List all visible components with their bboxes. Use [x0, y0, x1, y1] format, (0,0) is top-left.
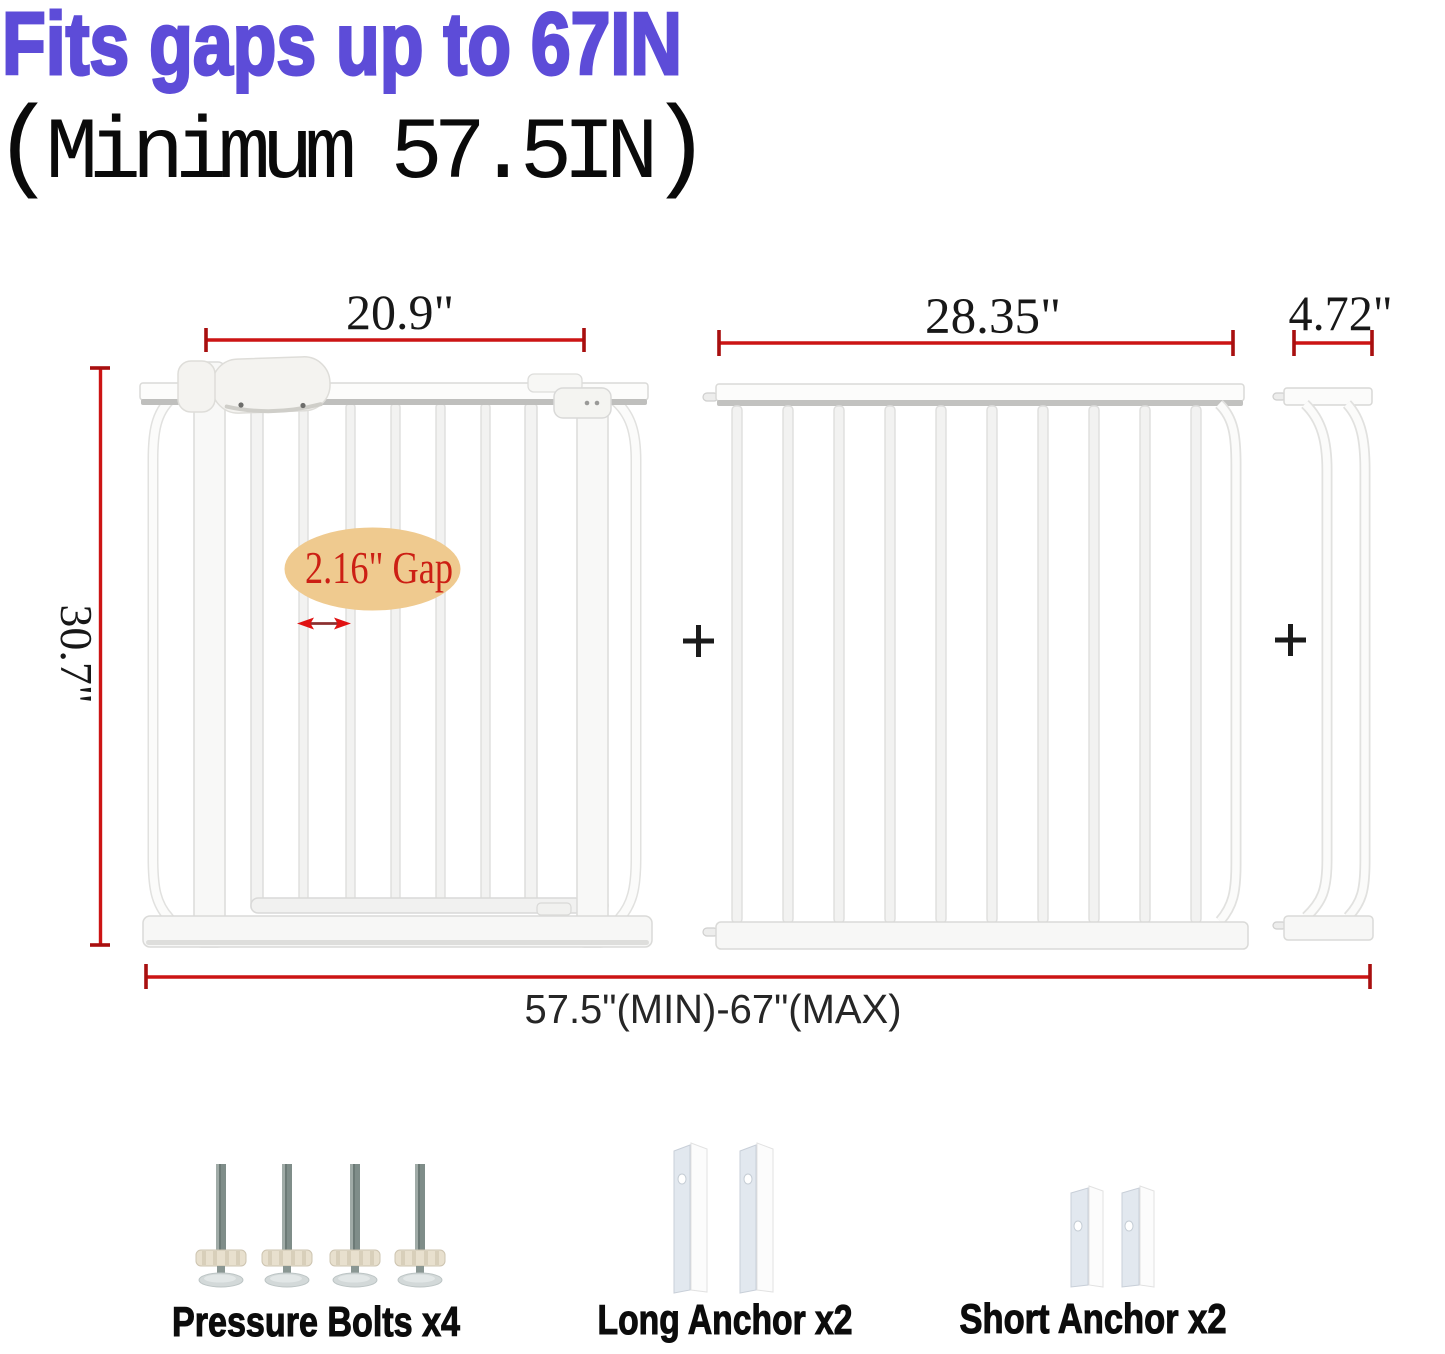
svg-text:2.16" Gap: 2.16" Gap [305, 542, 453, 593]
svg-text:30.7": 30.7" [51, 604, 102, 703]
svg-text:4.72": 4.72" [1289, 285, 1393, 341]
svg-text:57.5"(MIN)-67"(MAX): 57.5"(MIN)-67"(MAX) [525, 986, 902, 1032]
svg-text:28.35": 28.35" [925, 289, 1061, 345]
svg-text:(Minimum 57.5IN): (Minimum 57.5IN) [0, 91, 711, 208]
svg-text:Pressure Bolts x4: Pressure Bolts x4 [172, 1298, 461, 1345]
svg-text:Short Anchor x2: Short Anchor x2 [960, 1295, 1227, 1342]
svg-text:Fits gaps up to 67IN: Fits gaps up to 67IN [2, 0, 682, 93]
svg-text:Long Anchor x2: Long Anchor x2 [598, 1296, 853, 1343]
svg-text:20.9": 20.9" [346, 284, 454, 340]
